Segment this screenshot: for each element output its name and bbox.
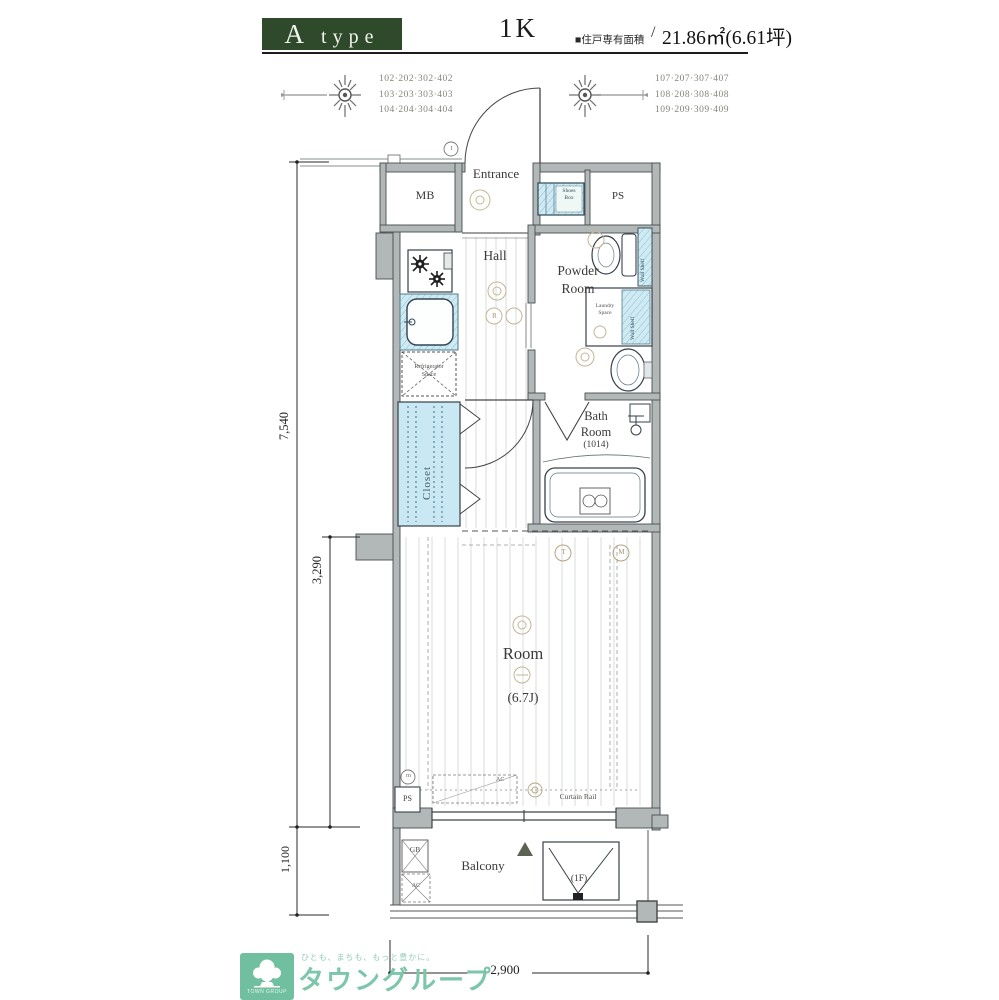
label-room-size: (6.7J) [492, 690, 554, 706]
label-refrigerator: Refrigerator Space [400, 364, 458, 379]
railing-post [637, 901, 657, 922]
closet-folding-doors [460, 404, 480, 514]
bath-floor-curve [543, 455, 650, 462]
label-balcony-ac: AC [406, 883, 426, 889]
label-shoes-box: Shoes Box [556, 188, 582, 202]
label-entrance: Entrance [456, 166, 536, 182]
label-curtain-rail: Curtain Rail [540, 792, 616, 801]
washbasin-icon [611, 349, 652, 391]
label-laundry-space: Laundry Space [588, 303, 622, 317]
brand-name: タウングループ [298, 960, 492, 997]
label-bath-room: Bath Room [558, 408, 634, 440]
room-ac-space [433, 775, 517, 803]
entrance-step [462, 233, 528, 238]
label-closet: Closet [421, 430, 433, 500]
bathtub-icon [545, 468, 645, 522]
label-wall-shelf-mid: Wall Shelf [630, 296, 636, 340]
floorplan-page: A type 1K ■住戸専有面積 / 21.86㎡(6.61坪) 102·20… [0, 0, 999, 1000]
evacuation-triangle [517, 842, 533, 856]
dim-room-depth: 3,290 [310, 556, 325, 584]
balcony-window [432, 808, 616, 828]
label-hall: Hall [463, 248, 527, 264]
room-floorboards [406, 537, 640, 806]
room-door [465, 400, 533, 468]
label-powder-room: Powder Room [536, 262, 620, 298]
label-mb: MB [398, 188, 452, 203]
label-bath-size: (1014) [558, 440, 634, 450]
label-entry-t: t [447, 144, 456, 152]
floorplan-linework [0, 0, 999, 1000]
dim-balcony-depth: 1,100 [278, 846, 293, 873]
label-hatch-floor: (1F) [558, 874, 600, 884]
label-meter: m [404, 772, 413, 779]
label-outlet-r: R [490, 312, 499, 320]
label-outlet-t: T [559, 548, 568, 556]
dim-total-depth: 7,540 [277, 412, 292, 440]
entrance-door [465, 88, 540, 163]
stove-icon [408, 250, 452, 292]
evacuation-hatch [543, 842, 619, 900]
label-outlet-m: M [617, 548, 626, 556]
label-room: Room [495, 644, 551, 664]
label-gb: GB [404, 845, 426, 854]
powder-sliding-door [526, 303, 531, 348]
label-ps-small: PS [397, 794, 418, 803]
kitchen-sink-icon [400, 294, 458, 350]
label-room-ac: AC [496, 777, 504, 783]
logo-caption: TOWN GROUP [243, 989, 291, 995]
label-wall-shelf-top: Wall Shelf [640, 234, 646, 282]
label-balcony: Balcony [448, 858, 518, 874]
label-ps: PS [596, 190, 640, 202]
hall-floorboards [466, 237, 526, 528]
